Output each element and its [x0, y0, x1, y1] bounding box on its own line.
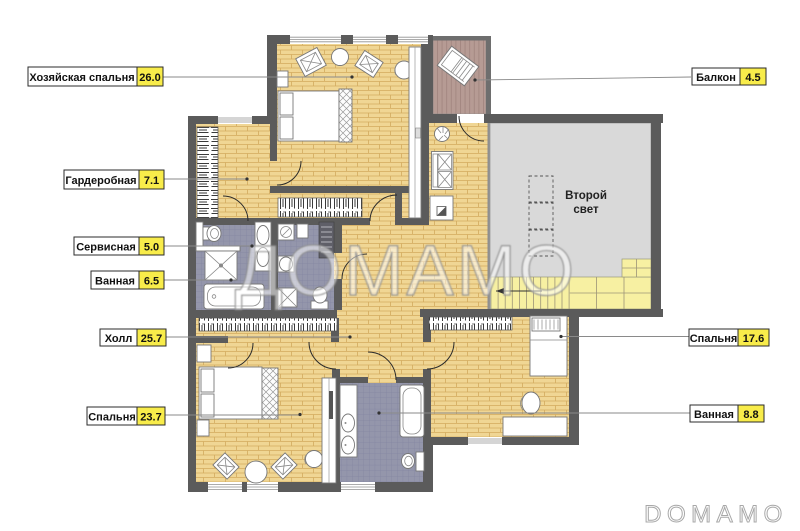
svg-text:Сервисная: Сервисная: [76, 242, 136, 254]
svg-text:4.5: 4.5: [745, 72, 760, 84]
svg-text:23.7: 23.7: [140, 412, 161, 424]
svg-text:Спальня: Спальня: [88, 412, 136, 424]
svg-text:Балкон: Балкон: [696, 72, 736, 84]
svg-text:Второй: Второй: [565, 190, 607, 202]
svg-text:Спальня: Спальня: [690, 333, 738, 345]
svg-text:7.1: 7.1: [144, 175, 159, 187]
svg-text:25.7: 25.7: [141, 333, 162, 345]
svg-text:Холл: Холл: [105, 333, 133, 345]
svg-text:26.0: 26.0: [139, 72, 160, 84]
svg-text:Гардеробная: Гардеробная: [65, 175, 136, 187]
svg-text:Ванная: Ванная: [95, 276, 135, 288]
svg-text:ДОМАМО: ДОМАМО: [235, 232, 577, 311]
svg-text:8.8: 8.8: [743, 409, 758, 421]
svg-text:17.6: 17.6: [743, 333, 764, 345]
svg-text:6.5: 6.5: [144, 276, 159, 288]
svg-text:Хозяйская спальня: Хозяйская спальня: [29, 72, 134, 84]
svg-text:Ванная: Ванная: [694, 409, 734, 421]
svg-text:свет: свет: [573, 204, 599, 216]
svg-text:DOMAMO: DOMAMO: [644, 501, 788, 528]
svg-text:5.0: 5.0: [144, 242, 159, 254]
